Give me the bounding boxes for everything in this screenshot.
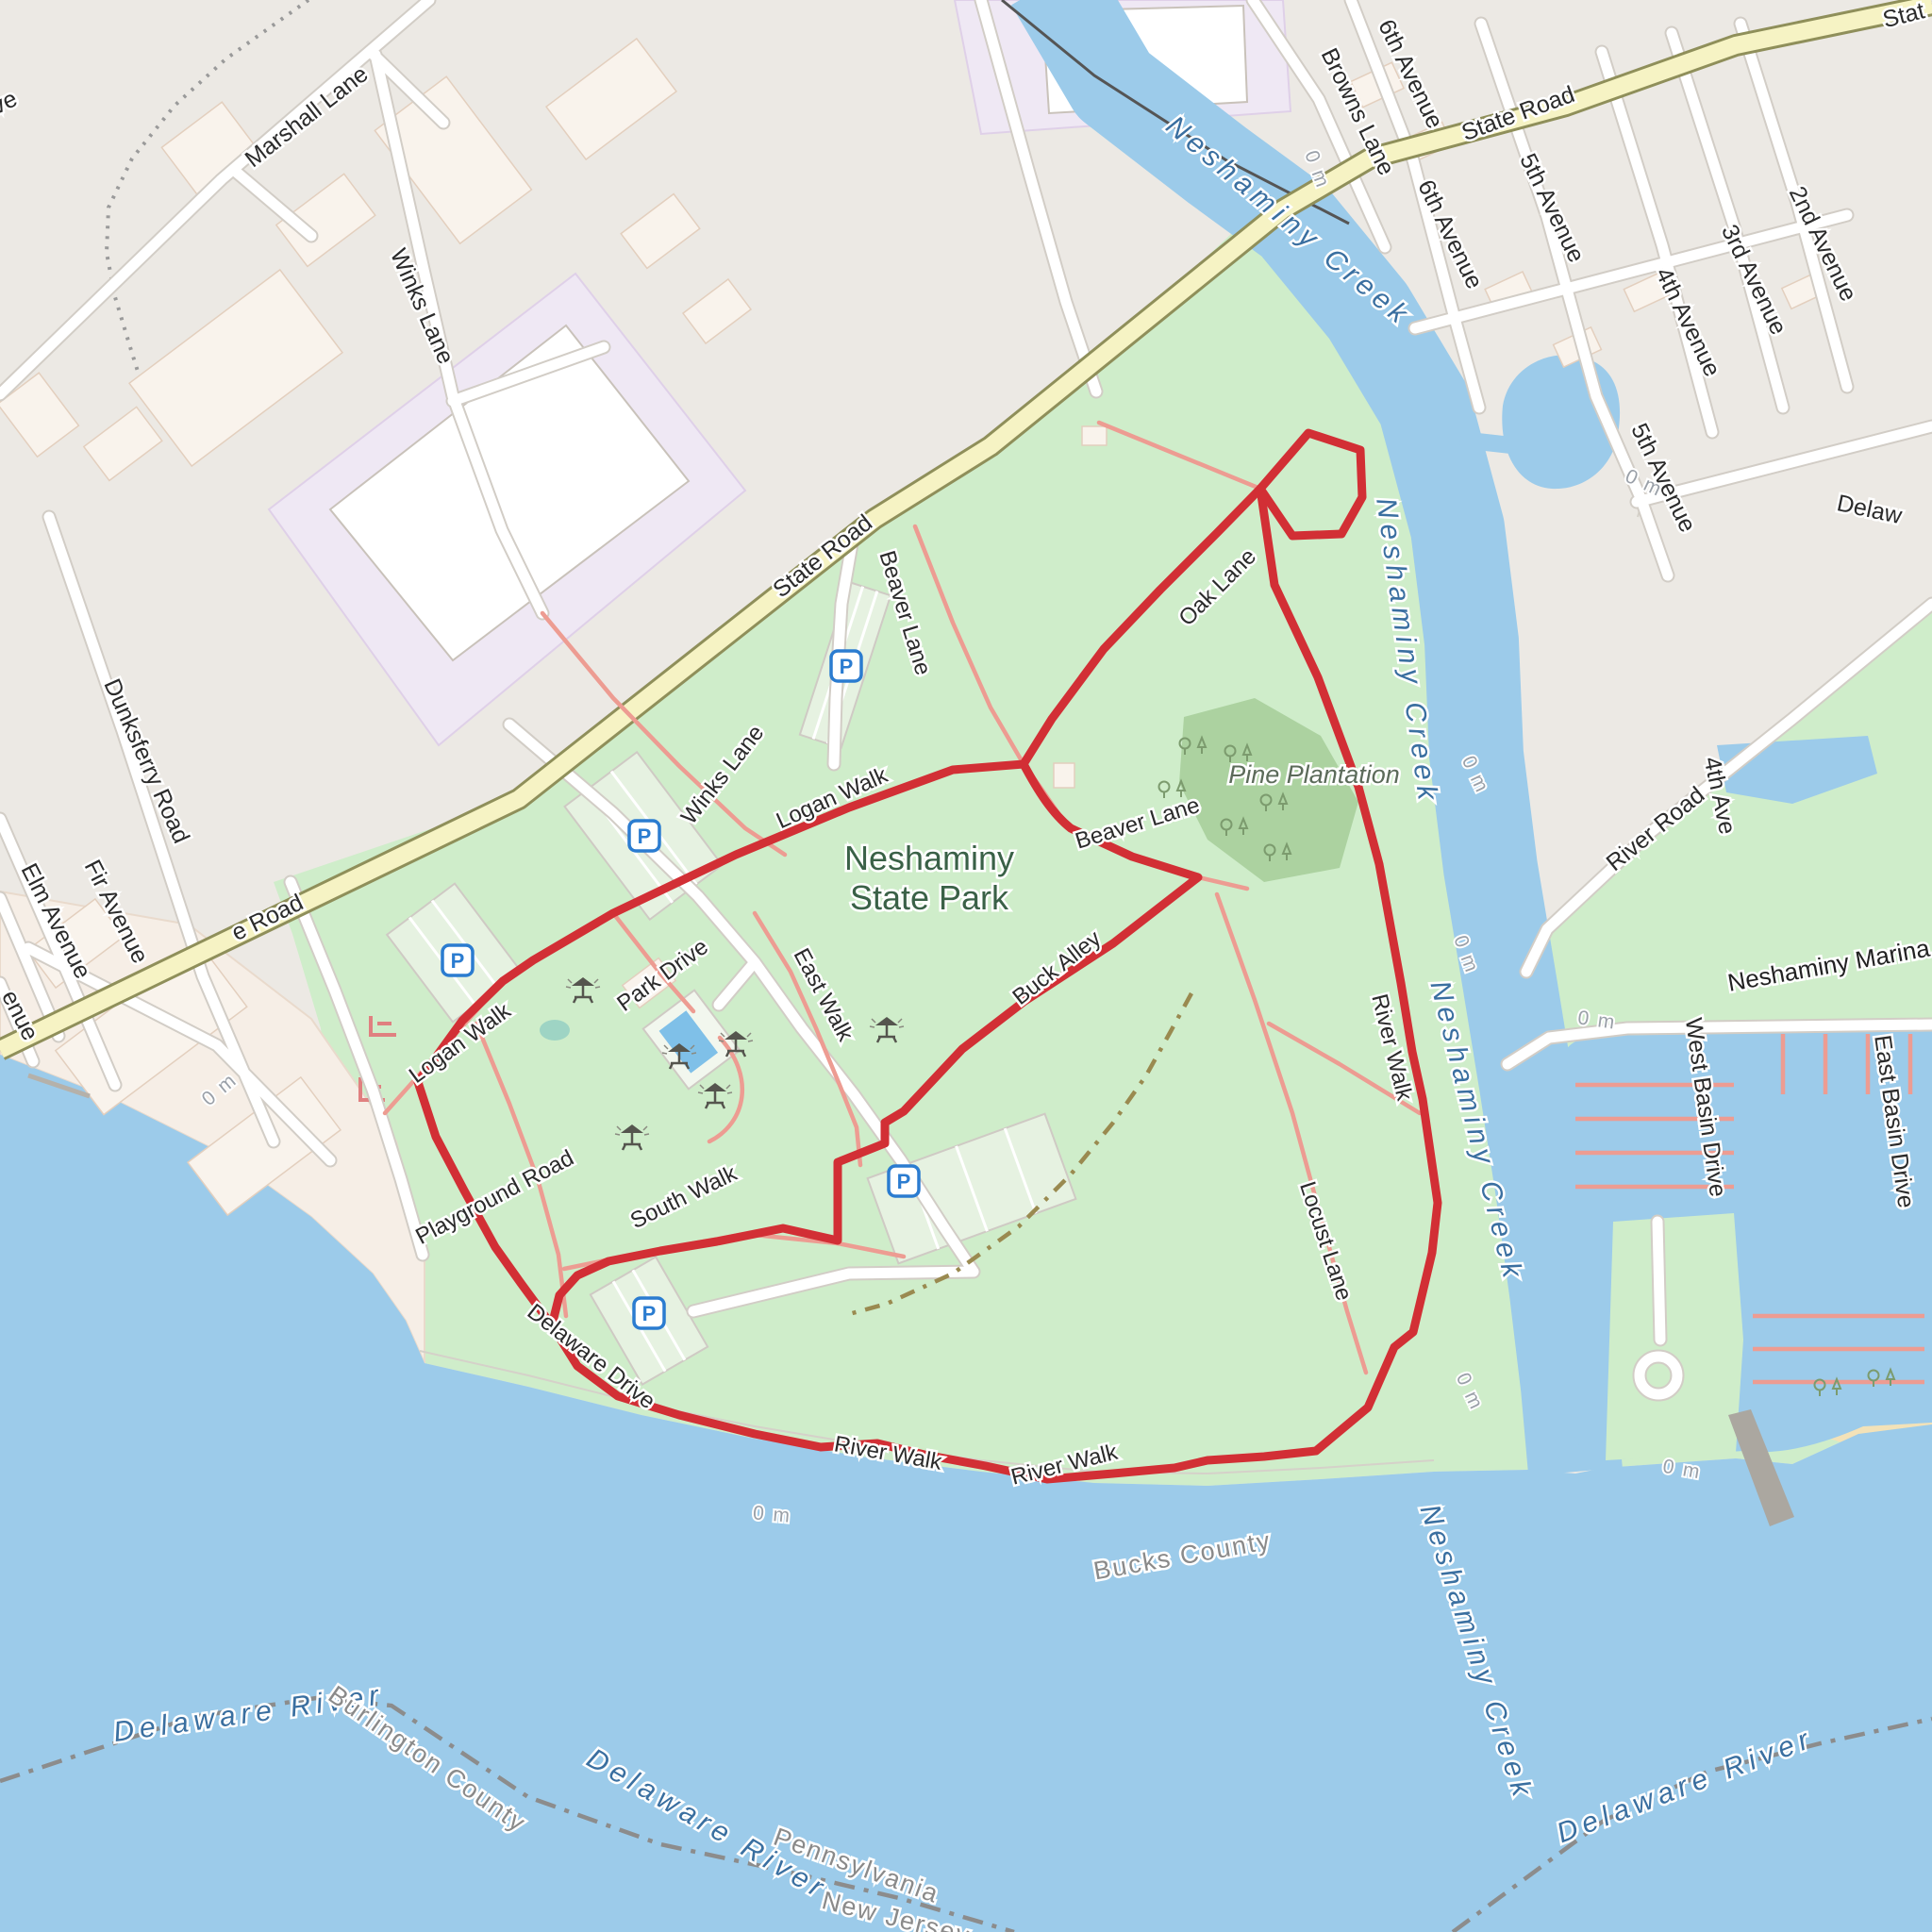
map-canvas[interactable]: P P P P P Ne	[0, 0, 1932, 1932]
parking-icon[interactable]: P	[889, 1166, 919, 1196]
parking-icon[interactable]: P	[831, 651, 861, 681]
parking-icon[interactable]: P	[442, 945, 473, 975]
parking-letter: P	[642, 1302, 657, 1325]
parking-letter: P	[638, 824, 652, 848]
parking-letter: P	[451, 949, 465, 973]
contour-label: 0 m	[752, 1502, 792, 1526]
pine-plantation-label: Pine Plantation	[1228, 760, 1400, 789]
osm-map: P P P P P Ne	[0, 0, 1932, 1932]
parking-icon[interactable]: P	[634, 1298, 664, 1328]
pondlet	[540, 1020, 570, 1041]
pond-channel	[1460, 440, 1511, 445]
parking-letter: P	[840, 655, 854, 678]
parking-letter: P	[897, 1170, 911, 1193]
park-name-line2: State Park	[850, 878, 1009, 917]
parking-icon[interactable]: P	[629, 821, 659, 851]
park-name-line1: Neshaminy	[844, 839, 1014, 877]
marina-peninsula-green	[1606, 1213, 1743, 1460]
